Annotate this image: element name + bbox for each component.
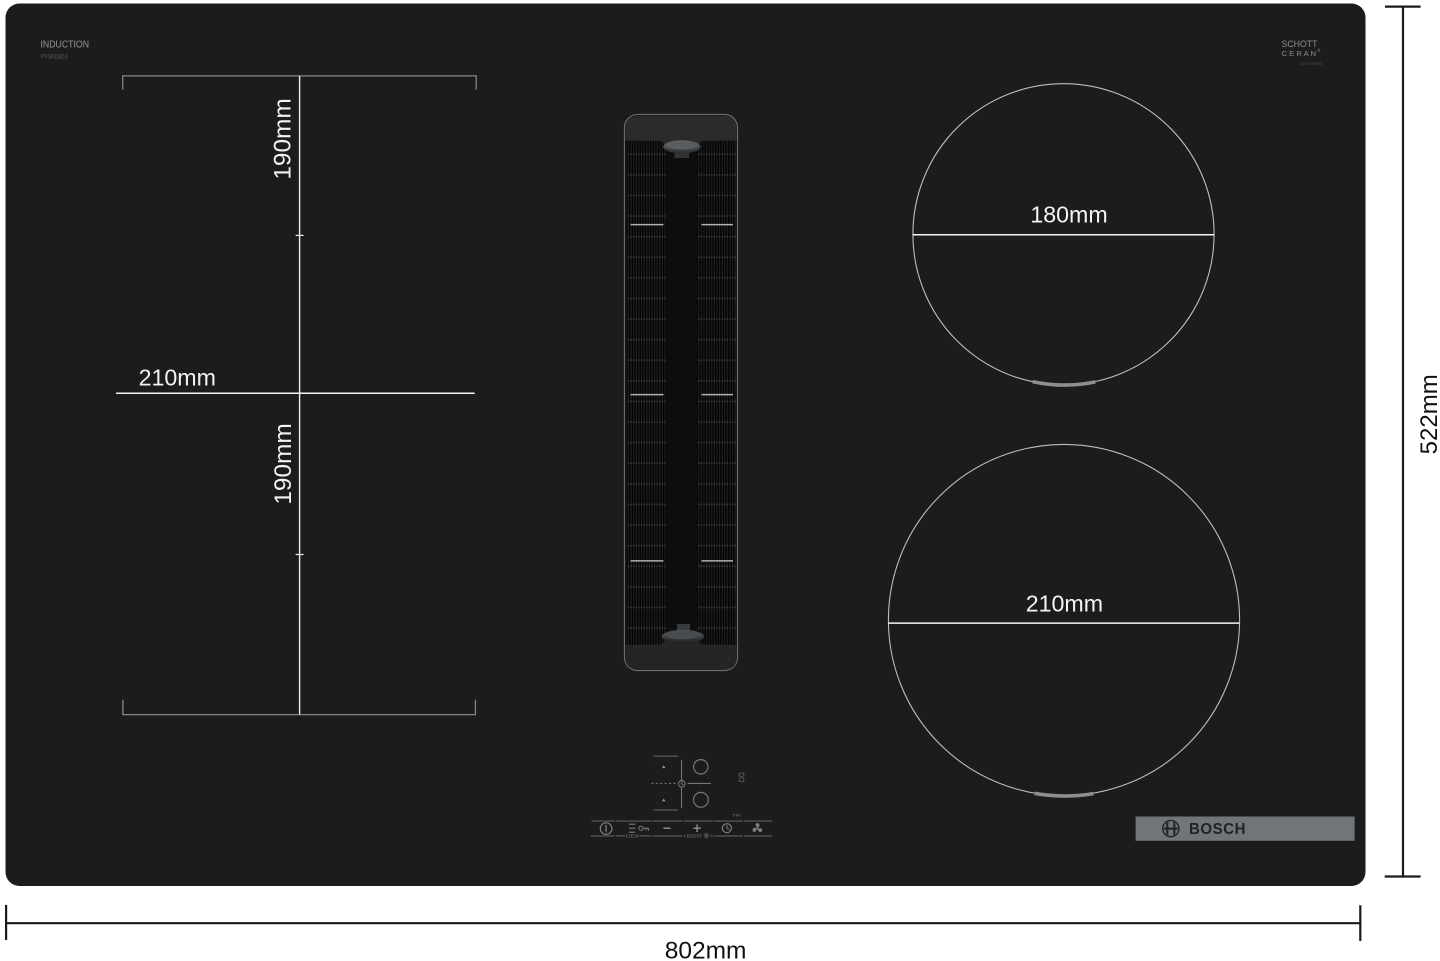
svg-text:min: min — [733, 813, 742, 819]
svg-text:190mm: 190mm — [270, 98, 297, 179]
svg-text:BOSCH: BOSCH — [1189, 821, 1246, 838]
svg-text:210mm: 210mm — [1026, 591, 1103, 617]
svg-text:BOOST: BOOST — [687, 833, 703, 839]
svg-text:Made in Germany: Made in Germany — [1301, 61, 1323, 66]
svg-text:INDUCTION: INDUCTION — [41, 39, 90, 50]
svg-text:190mm: 190mm — [270, 423, 297, 504]
svg-text:802mm: 802mm — [665, 938, 747, 961]
svg-text:CLEAN: CLEAN — [626, 834, 640, 840]
svg-text:C E R A N: C E R A N — [1282, 49, 1317, 58]
svg-text:210mm: 210mm — [139, 364, 216, 390]
svg-text:180mm: 180mm — [1030, 202, 1107, 228]
svg-text:PVS811B16: PVS811B16 — [41, 54, 69, 61]
svg-text:522mm: 522mm — [1416, 374, 1440, 454]
